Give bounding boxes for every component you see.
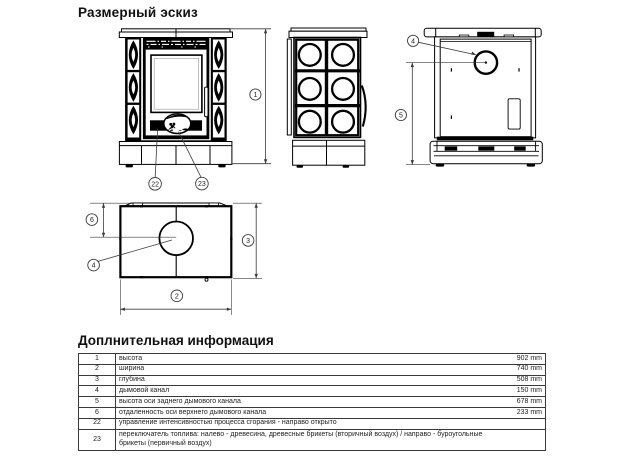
svg-text:2: 2 — [175, 293, 179, 300]
svg-text:5: 5 — [399, 113, 403, 120]
svg-text:1: 1 — [253, 92, 257, 99]
svg-text:4: 4 — [411, 38, 415, 45]
svg-text:22: 22 — [151, 181, 159, 188]
svg-text:6: 6 — [90, 217, 94, 224]
svg-text:3: 3 — [246, 238, 250, 245]
svg-text:4: 4 — [92, 263, 96, 270]
svg-text:23: 23 — [198, 181, 206, 188]
